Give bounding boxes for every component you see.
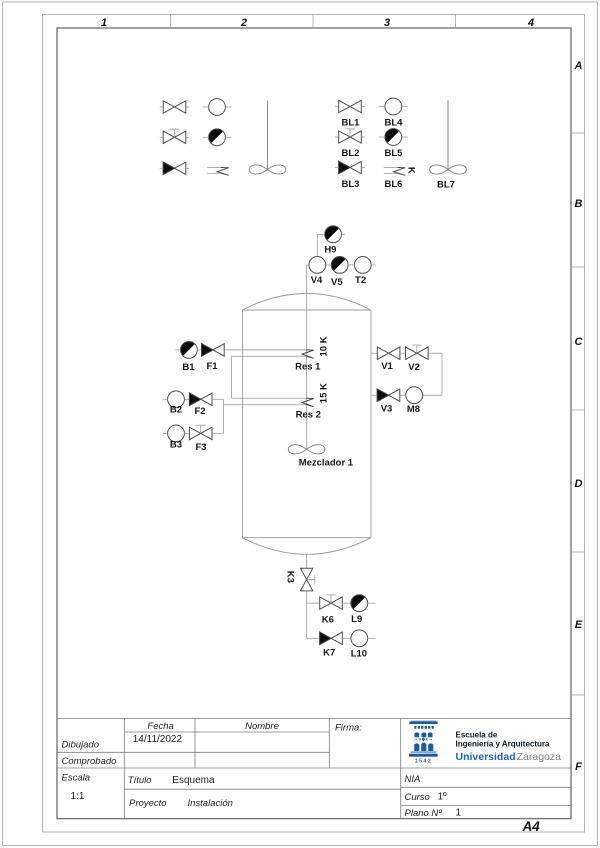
svg-text:1: 1 [456, 807, 462, 818]
svg-text:1:1: 1:1 [71, 791, 85, 802]
svg-text:H9: H9 [324, 244, 336, 255]
svg-text:C: C [575, 336, 584, 348]
svg-text:V3: V3 [381, 404, 393, 415]
svg-text:1º: 1º [438, 791, 448, 802]
svg-text:B3: B3 [170, 440, 182, 451]
svg-text:BL4: BL4 [385, 117, 404, 128]
svg-text:BL2: BL2 [342, 148, 360, 159]
svg-text:K7: K7 [323, 648, 335, 659]
svg-text:10 K: 10 K [319, 336, 330, 356]
svg-text:Escala: Escala [62, 773, 91, 784]
svg-text:BL3: BL3 [342, 179, 360, 190]
svg-text:4: 4 [527, 17, 534, 29]
svg-text:D: D [575, 478, 583, 490]
svg-text:L9: L9 [351, 614, 362, 625]
svg-text:Fecha: Fecha [147, 721, 173, 732]
svg-text:V1: V1 [381, 361, 393, 372]
svg-text:Escuela de: Escuela de [456, 731, 498, 740]
svg-text:BL6: BL6 [385, 179, 403, 190]
svg-text:2: 2 [240, 17, 247, 29]
svg-text:L10: L10 [351, 649, 367, 660]
svg-text:Mezclador 1: Mezclador 1 [299, 458, 354, 469]
svg-text:Firma:: Firma: [335, 723, 362, 734]
svg-text:B2: B2 [170, 405, 182, 416]
svg-text:A: A [574, 60, 583, 72]
svg-text:BL7: BL7 [437, 180, 455, 191]
svg-text:F1: F1 [206, 361, 218, 372]
svg-text:E: E [575, 619, 583, 631]
svg-text:Nombre: Nombre [245, 721, 279, 732]
svg-text:Comprobado: Comprobado [62, 756, 117, 767]
svg-text:Curso: Curso [405, 792, 430, 803]
svg-text:B1: B1 [182, 362, 195, 373]
svg-text:15 K: 15 K [319, 383, 330, 403]
svg-text:Esquema: Esquema [172, 775, 215, 786]
svg-text:Res 2: Res 2 [296, 410, 321, 421]
svg-text:T2: T2 [355, 275, 366, 286]
svg-text:Res 1: Res 1 [295, 361, 321, 372]
svg-text:NIA: NIA [405, 774, 421, 785]
svg-text:Proyecto: Proyecto [129, 798, 167, 809]
svg-text:V2: V2 [408, 362, 420, 373]
svg-text:BL5: BL5 [385, 148, 404, 159]
svg-text:3: 3 [384, 17, 390, 29]
svg-text:Plano Nº: Plano Nº [405, 808, 443, 819]
svg-text:14/11/2022: 14/11/2022 [133, 734, 183, 745]
svg-text:Título: Título [128, 775, 152, 786]
svg-text:Instalación: Instalación [188, 798, 233, 809]
svg-text:Dibujado: Dibujado [62, 740, 100, 751]
svg-text:V4: V4 [311, 275, 323, 286]
svg-text:F3: F3 [195, 442, 206, 453]
svg-text:V5: V5 [331, 277, 343, 288]
svg-text:Ingeniería y Arquitectura: Ingeniería y Arquitectura [456, 740, 551, 749]
svg-text:M8: M8 [407, 404, 420, 415]
svg-text:B: B [575, 198, 583, 210]
svg-text:K: K [405, 167, 416, 174]
svg-text:F: F [575, 761, 582, 773]
svg-text:1: 1 [101, 17, 107, 29]
svg-text:K3: K3 [285, 571, 296, 583]
svg-text:A4: A4 [522, 819, 541, 834]
svg-text:BL1: BL1 [342, 117, 361, 128]
svg-text:K6: K6 [322, 615, 334, 626]
svg-text:1542: 1542 [415, 759, 433, 765]
svg-text:F2: F2 [194, 406, 205, 417]
svg-text:UniversidadZaragoza: UniversidadZaragoza [456, 751, 562, 763]
